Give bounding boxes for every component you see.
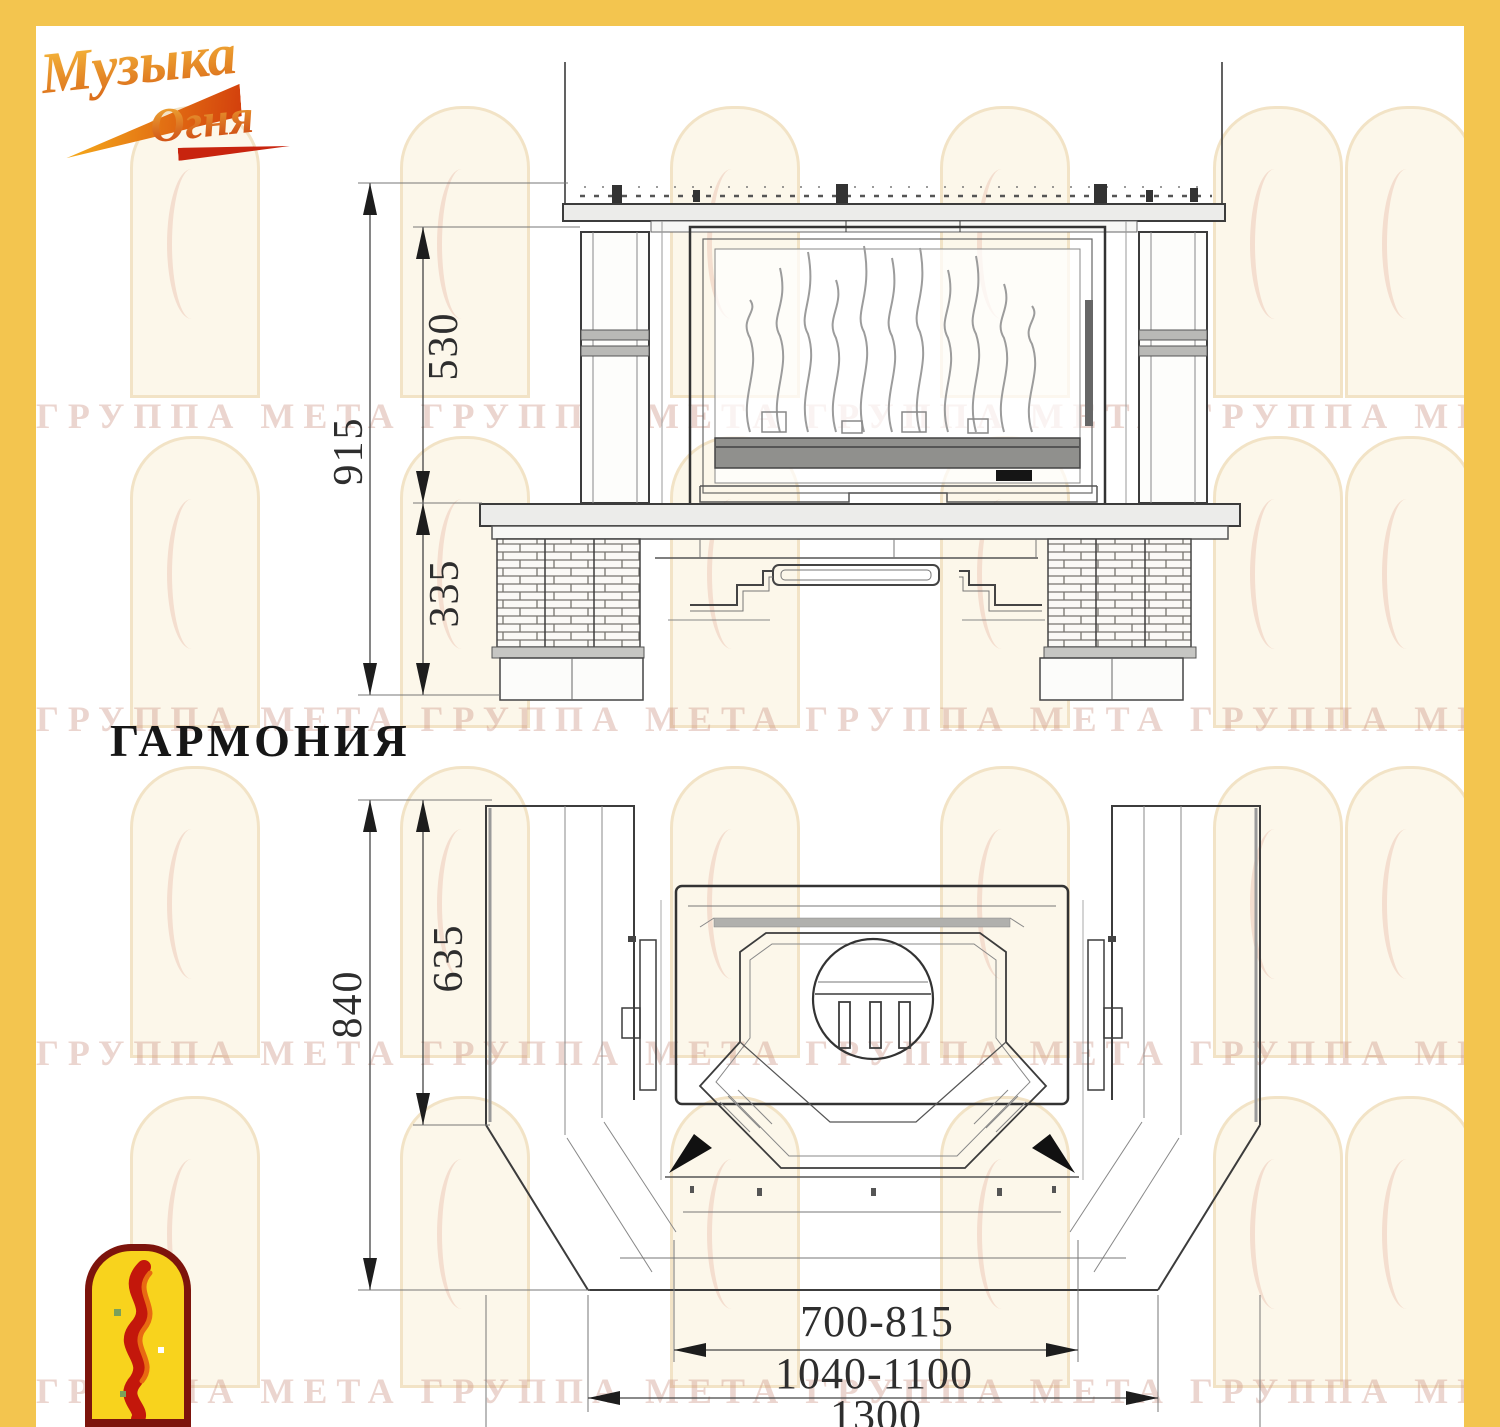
dim-total-depth: 840 — [324, 924, 370, 1084]
frame-left-band — [0, 0, 36, 1427]
poster-canvas: ГРУППА МЕТА ГРУППА МЕТА ГРУППА МЕТА ГРУП… — [0, 0, 1500, 1427]
dim-firebox-height: 530 — [420, 266, 466, 426]
dim-firebox-width: 700-815 — [717, 1296, 1037, 1347]
logo-word-ognya: Огня — [147, 89, 256, 155]
flame-figure-icon — [92, 1251, 184, 1427]
dim-base-height: 335 — [421, 513, 467, 673]
dim-wall-depth: 635 — [425, 878, 471, 1038]
dim-total-height: 915 — [325, 371, 371, 531]
frame-right-band — [1464, 0, 1500, 1427]
model-title: ГАРМОНИЯ — [110, 714, 411, 767]
flame-figure-logo — [85, 1244, 191, 1427]
music-of-fire-logo: Музыка Огня — [28, 16, 278, 176]
plan-view — [486, 806, 1260, 1290]
front-view — [480, 62, 1240, 700]
dim-total-width: 1300 — [716, 1390, 1036, 1427]
